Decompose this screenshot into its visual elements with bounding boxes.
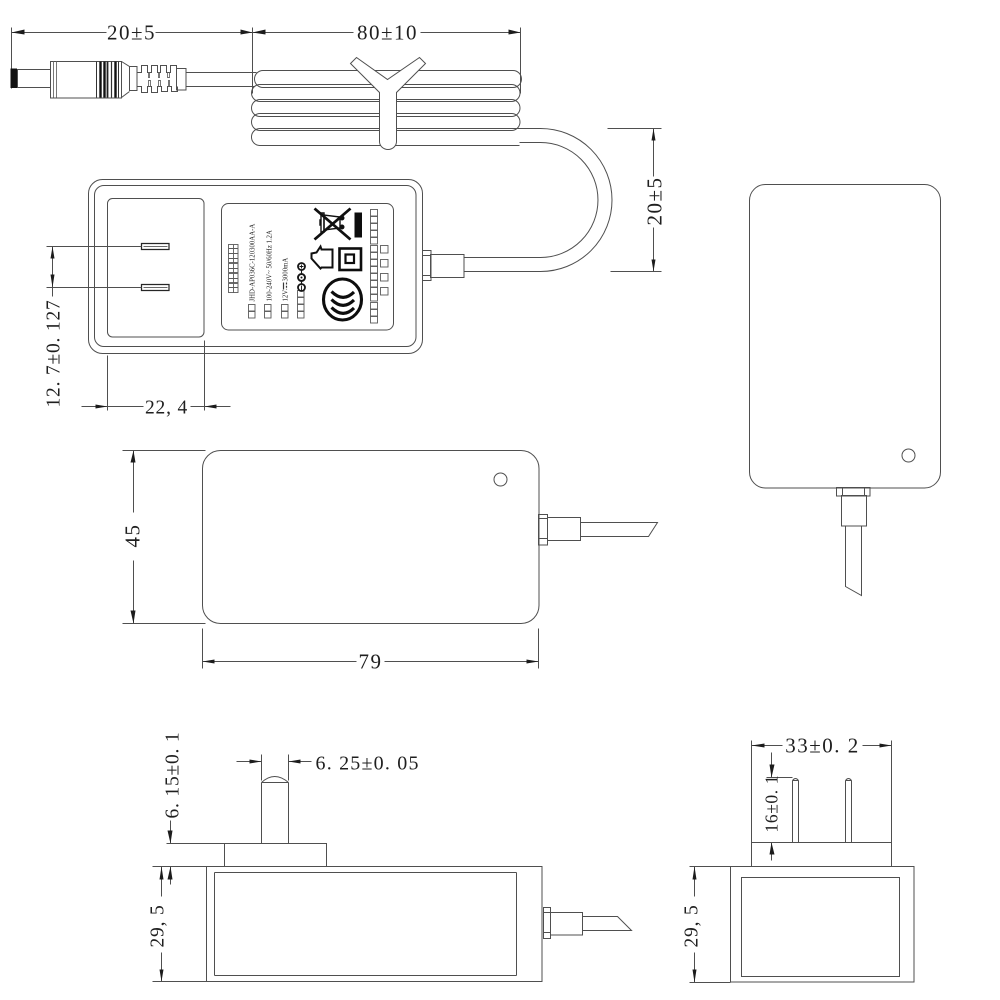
svg-text:100-240V~ 50/60Hz 1.2A: 100-240V~ 50/60Hz 1.2A <box>267 230 274 302</box>
svg-text:12. 7±0. 127: 12. 7±0. 127 <box>44 299 65 407</box>
svg-text:29, 5: 29, 5 <box>148 905 169 948</box>
svg-text:20±5: 20±5 <box>107 21 156 45</box>
svg-text:JHD-AP036C-120300AA-A: JHD-AP036C-120300AA-A <box>250 224 257 302</box>
svg-text:20±5: 20±5 <box>643 176 667 225</box>
svg-text:79: 79 <box>359 650 383 674</box>
svg-text:22, 4: 22, 4 <box>145 398 188 419</box>
svg-text:29, 5: 29, 5 <box>682 905 703 948</box>
svg-text:6. 25±0. 05: 6. 25±0. 05 <box>316 753 420 775</box>
svg-text:6. 15±0. 1: 6. 15±0. 1 <box>163 732 184 819</box>
svg-text:45: 45 <box>121 524 145 548</box>
svg-text:12V: 12V <box>283 290 290 302</box>
svg-text:33±0. 2: 33±0. 2 <box>785 734 860 758</box>
svg-text:16±0. 1: 16±0. 1 <box>762 775 782 833</box>
svg-text:80±10: 80±10 <box>357 21 418 45</box>
svg-text:3000mA: 3000mA <box>283 258 290 282</box>
